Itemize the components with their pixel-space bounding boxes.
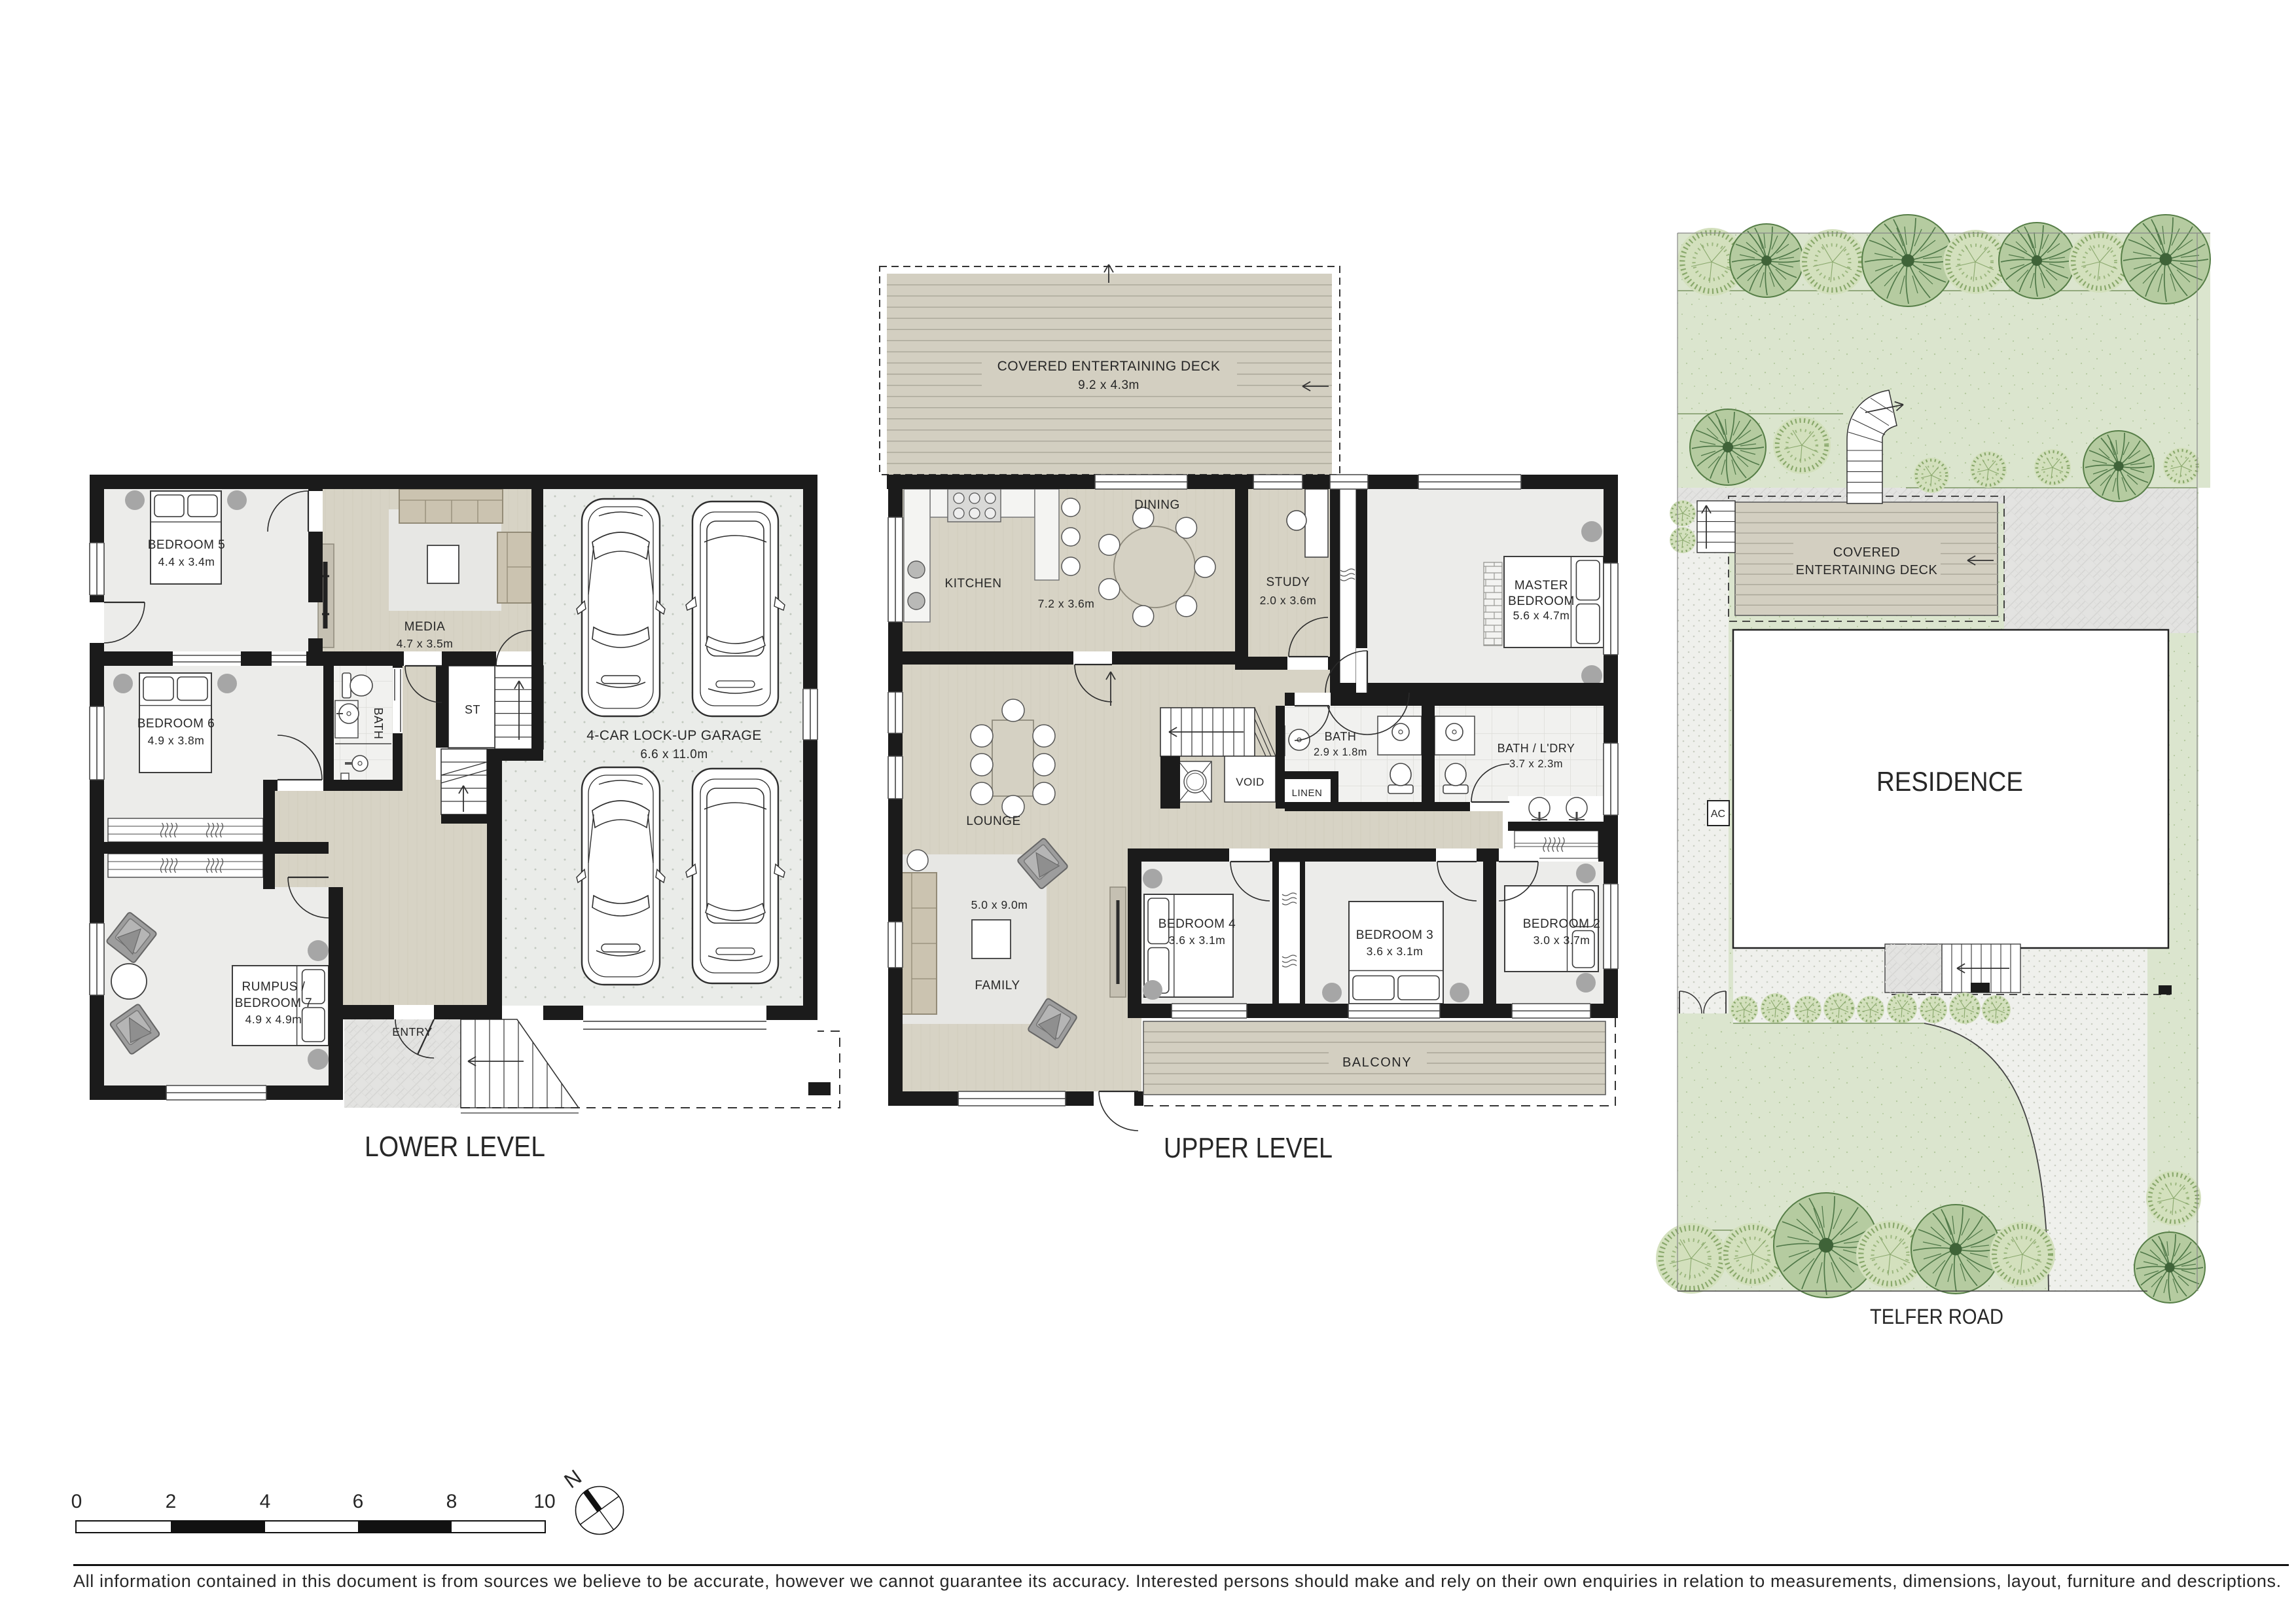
svg-text:DINING: DINING: [1134, 498, 1180, 512]
svg-text:All information contained in t: All information contained in this docume…: [73, 1571, 2282, 1591]
svg-text:BEDROOM 2: BEDROOM 2: [1523, 917, 1601, 931]
svg-text:BEDROOM 7: BEDROOM 7: [235, 996, 313, 1010]
svg-text:KITCHEN: KITCHEN: [945, 577, 1002, 591]
svg-text:5.0 x 9.0m: 5.0 x 9.0m: [971, 898, 1028, 911]
svg-text:8: 8: [446, 1491, 457, 1512]
svg-text:COVERED: COVERED: [1833, 545, 1900, 560]
svg-text:ENTERTAINING DECK: ENTERTAINING DECK: [1796, 563, 1938, 577]
svg-text:2.0 x 3.6m: 2.0 x 3.6m: [1260, 594, 1317, 607]
svg-text:BALCONY: BALCONY: [1342, 1055, 1412, 1070]
svg-text:10: 10: [533, 1491, 555, 1512]
svg-text:3.7 x 2.3m: 3.7 x 2.3m: [1509, 758, 1563, 770]
svg-text:BATH: BATH: [372, 708, 385, 740]
svg-text:4.7 x 3.5m: 4.7 x 3.5m: [397, 637, 454, 650]
svg-text:3.6 x 3.1m: 3.6 x 3.1m: [1367, 945, 1424, 958]
svg-text:BEDROOM 5: BEDROOM 5: [148, 538, 226, 552]
svg-text:BEDROOM 3: BEDROOM 3: [1356, 928, 1434, 942]
svg-text:4.9 x 3.8m: 4.9 x 3.8m: [148, 734, 205, 747]
svg-text:9.2 x 4.3m: 9.2 x 4.3m: [1078, 378, 1139, 392]
svg-text:7.2 x 3.6m: 7.2 x 3.6m: [1038, 597, 1095, 610]
svg-text:BEDROOM: BEDROOM: [1508, 594, 1575, 608]
svg-text:5.6 x 4.7m: 5.6 x 4.7m: [1513, 609, 1570, 622]
svg-text:6: 6: [353, 1491, 364, 1512]
svg-text:BEDROOM 6: BEDROOM 6: [137, 717, 215, 731]
svg-text:FAMILY: FAMILY: [975, 979, 1020, 993]
svg-text:4.9 x 4.9m: 4.9 x 4.9m: [245, 1013, 302, 1026]
svg-text:MASTER: MASTER: [1515, 579, 1568, 593]
svg-text:LOWER LEVEL: LOWER LEVEL: [365, 1131, 545, 1163]
svg-text:AC: AC: [1711, 809, 1725, 820]
svg-text:2.9 x 1.8m: 2.9 x 1.8m: [1314, 746, 1367, 758]
svg-text:BATH: BATH: [1325, 730, 1357, 743]
svg-text:COVERED ENTERTAINING DECK: COVERED ENTERTAINING DECK: [997, 359, 1221, 374]
svg-text:BEDROOM 4: BEDROOM 4: [1158, 917, 1236, 931]
svg-text:2: 2: [166, 1491, 177, 1512]
svg-text:4.4 x 3.4m: 4.4 x 3.4m: [158, 555, 215, 568]
svg-text:6.6 x 11.0m: 6.6 x 11.0m: [640, 748, 708, 761]
svg-text:LINEN: LINEN: [1292, 788, 1323, 799]
svg-text:LOUNGE: LOUNGE: [966, 814, 1020, 828]
svg-text:VOID: VOID: [1236, 776, 1265, 788]
svg-text:3.0 x 3.7m: 3.0 x 3.7m: [1534, 934, 1590, 947]
svg-text:TELFER ROAD: TELFER ROAD: [1870, 1305, 2003, 1328]
svg-text:4: 4: [260, 1491, 271, 1512]
svg-text:RUMPUS /: RUMPUS /: [242, 980, 306, 994]
svg-text:UPPER LEVEL: UPPER LEVEL: [1164, 1132, 1333, 1164]
svg-text:4-CAR LOCK-UP GARAGE: 4-CAR LOCK-UP GARAGE: [586, 728, 762, 743]
svg-text:BATH / L'DRY: BATH / L'DRY: [1498, 742, 1575, 755]
svg-text:3.6 x 3.1m: 3.6 x 3.1m: [1169, 934, 1226, 947]
svg-text:RESIDENCE: RESIDENCE: [1876, 766, 2023, 797]
svg-text:ST: ST: [465, 703, 480, 716]
svg-text:STUDY: STUDY: [1266, 575, 1310, 589]
svg-text:MEDIA: MEDIA: [404, 620, 446, 634]
svg-text:ENTRY: ENTRY: [392, 1025, 433, 1038]
svg-text:0: 0: [71, 1491, 82, 1512]
